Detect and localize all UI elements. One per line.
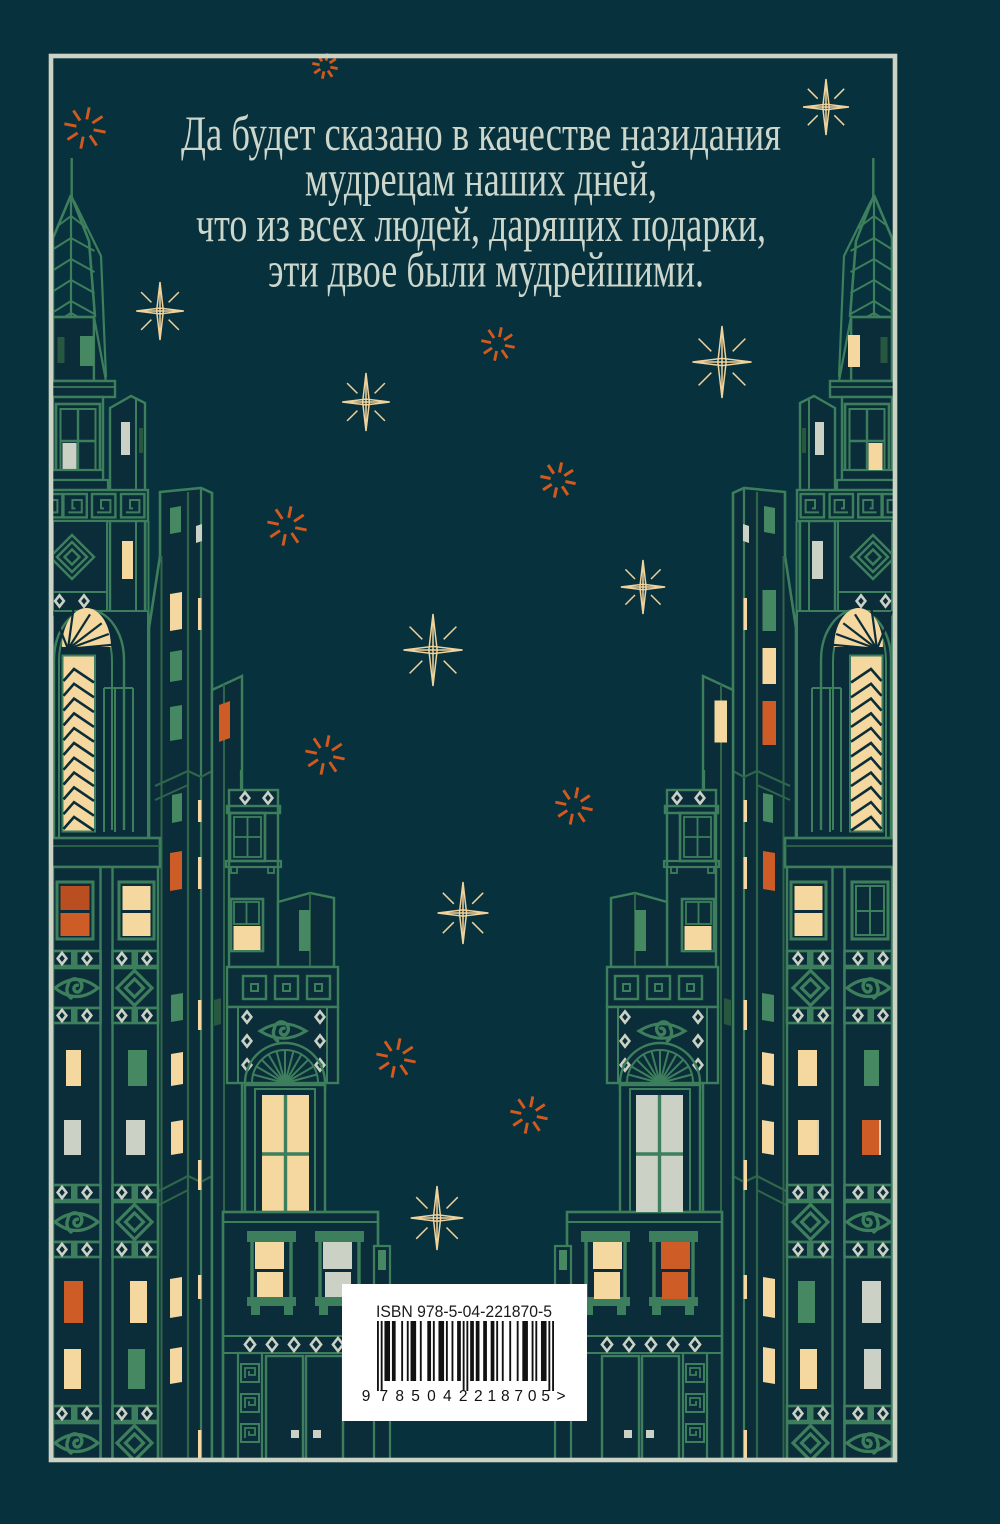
svg-text:ISBN 978-5-04-221870-5: ISBN 978-5-04-221870-5 — [376, 1303, 552, 1321]
svg-text:9: 9 — [362, 1388, 371, 1405]
svg-text:>: > — [556, 1388, 565, 1405]
svg-text:эти двое были мудрейшими.: эти двое были мудрейшими. — [268, 242, 704, 298]
